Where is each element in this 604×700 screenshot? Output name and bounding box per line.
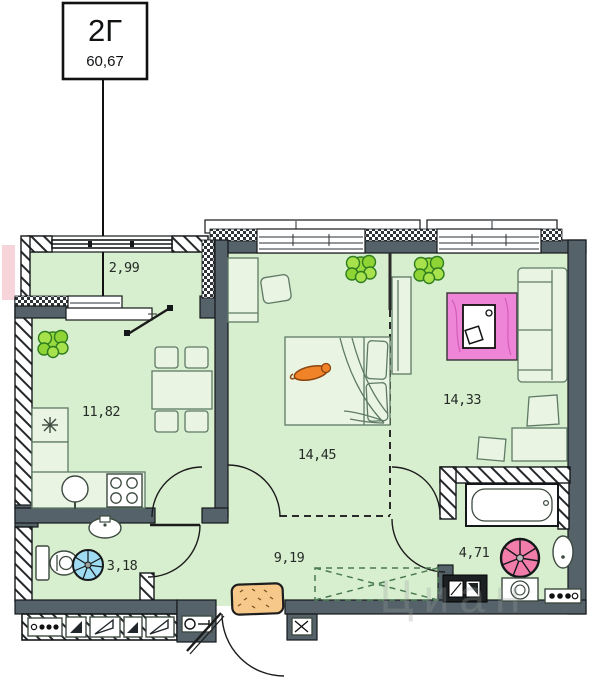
room-label-hallway: 9,19 [274, 550, 305, 566]
unit-title: 2Г [88, 13, 122, 48]
plant-icon [38, 331, 68, 358]
bottom-wall-left [15, 600, 177, 614]
bathtub-icon [466, 484, 558, 526]
vent-star-icon [42, 417, 58, 433]
living-bathroom-wall [440, 467, 570, 483]
room-label-bedroom: 14,45 [298, 447, 337, 463]
sofa [518, 268, 567, 382]
electric-panel-right [545, 589, 581, 603]
window-living [437, 229, 541, 253]
washbasin-icon [553, 536, 573, 568]
left-exterior-wall [15, 298, 32, 508]
room-label-wc: 3,18 [107, 558, 138, 574]
pillow [366, 341, 388, 380]
room-label-living: 14,33 [443, 392, 482, 408]
room-label-balcony: 2,99 [109, 260, 140, 276]
stool [477, 437, 506, 461]
plant-icon [414, 257, 444, 284]
coffee-table [463, 305, 495, 348]
entrance-porch-block [177, 600, 216, 642]
window-bedroom [257, 229, 365, 253]
neighbor-unit-strip [2, 245, 15, 300]
wardrobe [392, 277, 411, 374]
bed [285, 337, 390, 425]
left-exterior-wall-lower [15, 527, 32, 601]
balcony-railing [28, 236, 208, 252]
kitchen-bedroom-wall [215, 240, 228, 517]
floor-plan-page: 2Г 60,67 [0, 0, 604, 700]
balcony-left-wall [21, 236, 30, 298]
room-label-kitchen: 11,82 [82, 404, 120, 420]
fan-icon [73, 550, 103, 580]
plant-icon [346, 256, 376, 283]
chair [527, 395, 559, 426]
floor-plan: 2Г 60,67 [0, 0, 604, 700]
room-label-bathroom: 4,71 [459, 545, 490, 561]
meter-block [287, 614, 317, 640]
doormat-icon [231, 583, 283, 615]
stove-icon [107, 474, 142, 507]
unit-total-area: 60,67 [86, 53, 124, 70]
chair [260, 274, 292, 304]
kitchen-bottom-wall [15, 508, 155, 523]
utility-strip [22, 614, 177, 640]
desk [512, 428, 567, 461]
watermark: Циан [380, 570, 531, 622]
